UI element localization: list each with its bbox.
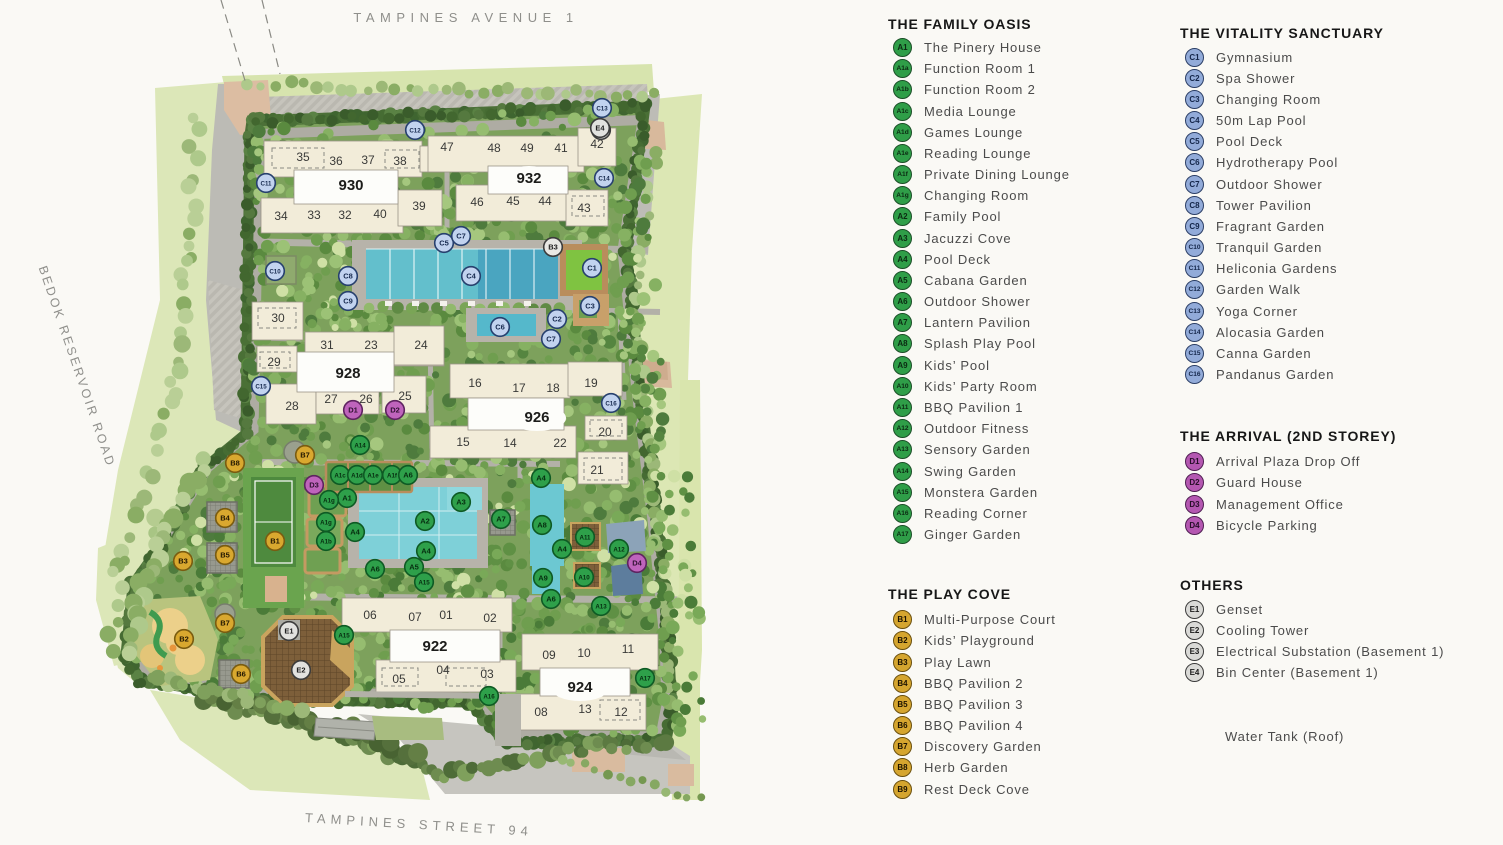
svg-text:07: 07	[408, 610, 422, 624]
svg-text:B4: B4	[220, 513, 230, 522]
svg-text:20: 20	[598, 425, 612, 439]
svg-text:03: 03	[480, 667, 494, 681]
svg-text:28: 28	[285, 399, 299, 413]
svg-text:A4: A4	[421, 546, 431, 555]
svg-text:21: 21	[590, 463, 604, 477]
svg-text:C6: C6	[495, 322, 505, 331]
svg-text:18: 18	[546, 381, 560, 395]
svg-text:A17: A17	[639, 675, 651, 682]
svg-text:C14: C14	[598, 175, 610, 182]
svg-text:B5: B5	[220, 550, 230, 559]
svg-text:TAMPINES STREET 94: TAMPINES STREET 94	[305, 810, 534, 839]
svg-text:10: 10	[577, 646, 591, 660]
svg-text:A14: A14	[354, 442, 366, 449]
svg-text:34: 34	[274, 209, 288, 223]
svg-text:D4: D4	[632, 558, 642, 567]
svg-text:13: 13	[578, 702, 592, 716]
svg-text:C8: C8	[343, 271, 353, 280]
svg-text:02: 02	[483, 611, 497, 625]
svg-text:TAMPINES AVENUE 1: TAMPINES AVENUE 1	[353, 10, 578, 25]
svg-text:47: 47	[440, 140, 454, 154]
svg-text:A15: A15	[338, 632, 350, 639]
svg-text:A1d: A1d	[351, 472, 363, 479]
svg-text:B8: B8	[230, 458, 240, 467]
svg-text:A9: A9	[538, 573, 548, 582]
svg-text:09: 09	[542, 648, 556, 662]
svg-text:36: 36	[329, 154, 343, 168]
svg-text:A4: A4	[557, 544, 567, 553]
svg-text:27: 27	[324, 392, 338, 406]
svg-text:A1b: A1b	[320, 538, 332, 545]
svg-text:15: 15	[456, 435, 470, 449]
svg-text:17: 17	[512, 381, 526, 395]
svg-text:33: 33	[307, 208, 321, 222]
svg-text:32: 32	[338, 208, 352, 222]
svg-text:C13: C13	[596, 105, 608, 112]
svg-text:B2: B2	[179, 634, 189, 643]
svg-text:43: 43	[577, 201, 591, 215]
svg-text:06: 06	[363, 608, 377, 622]
svg-text:45: 45	[506, 194, 520, 208]
svg-text:A7: A7	[496, 514, 506, 523]
svg-text:11: 11	[622, 642, 635, 656]
svg-text:926: 926	[524, 409, 549, 426]
svg-text:A6: A6	[370, 564, 380, 573]
svg-text:A11: A11	[579, 534, 591, 541]
svg-text:01: 01	[439, 608, 453, 622]
svg-text:B3: B3	[178, 556, 188, 565]
svg-text:A1g: A1g	[323, 497, 335, 504]
svg-text:C4: C4	[466, 271, 476, 280]
svg-text:49: 49	[520, 141, 534, 155]
svg-text:22: 22	[553, 436, 567, 450]
svg-text:29: 29	[267, 355, 281, 369]
svg-text:D3: D3	[309, 480, 319, 489]
svg-text:E4: E4	[595, 123, 605, 132]
svg-text:12: 12	[614, 705, 628, 719]
svg-text:A5: A5	[409, 562, 419, 571]
svg-text:A12: A12	[613, 546, 625, 553]
svg-text:928: 928	[335, 365, 360, 382]
svg-text:C5: C5	[439, 238, 449, 247]
svg-text:924: 924	[567, 679, 593, 696]
svg-text:C9: C9	[343, 296, 353, 305]
svg-text:A8: A8	[537, 520, 547, 529]
svg-text:C12: C12	[409, 127, 421, 134]
svg-text:04: 04	[436, 663, 450, 677]
svg-text:A16: A16	[483, 693, 495, 700]
svg-text:37: 37	[361, 153, 375, 167]
svg-text:48: 48	[487, 141, 501, 155]
svg-text:A1: A1	[342, 493, 352, 502]
svg-text:C11: C11	[260, 180, 272, 187]
svg-text:19: 19	[584, 376, 598, 390]
svg-text:A4: A4	[350, 527, 360, 536]
svg-text:D2: D2	[390, 405, 400, 414]
svg-text:38: 38	[393, 154, 407, 168]
svg-text:30: 30	[271, 311, 285, 325]
svg-text:A13: A13	[595, 603, 607, 610]
svg-text:E2: E2	[296, 665, 305, 674]
svg-text:A1e: A1e	[367, 472, 379, 479]
svg-text:C2: C2	[552, 314, 562, 323]
svg-text:930: 930	[338, 177, 363, 194]
svg-text:E1: E1	[284, 626, 293, 635]
svg-text:B3: B3	[548, 242, 558, 251]
svg-text:D1: D1	[348, 405, 358, 414]
svg-text:B6: B6	[236, 669, 246, 678]
svg-text:A1g: A1g	[320, 519, 332, 526]
svg-text:A3: A3	[456, 497, 466, 506]
svg-text:B1: B1	[270, 536, 280, 545]
svg-text:BEDOK RESERVOIR ROAD: BEDOK RESERVOIR ROAD	[36, 264, 118, 469]
svg-text:46: 46	[470, 195, 484, 209]
svg-text:A4: A4	[536, 473, 546, 482]
svg-text:A15: A15	[418, 579, 430, 586]
svg-text:C15: C15	[255, 383, 267, 390]
svg-text:922: 922	[422, 638, 447, 655]
svg-text:B7: B7	[220, 618, 230, 627]
svg-text:39: 39	[412, 199, 426, 213]
svg-text:44: 44	[538, 194, 552, 208]
svg-text:40: 40	[373, 207, 387, 221]
svg-text:A2: A2	[420, 516, 430, 525]
svg-text:25: 25	[398, 389, 412, 403]
svg-text:C10: C10	[269, 268, 281, 275]
svg-text:14: 14	[503, 436, 517, 450]
svg-text:23: 23	[364, 338, 378, 352]
svg-text:A1c: A1c	[334, 472, 346, 479]
svg-text:C1: C1	[587, 263, 597, 272]
svg-text:932: 932	[516, 170, 541, 187]
svg-text:35: 35	[296, 150, 310, 164]
svg-text:A1f: A1f	[387, 472, 398, 479]
svg-text:26: 26	[359, 392, 373, 406]
svg-text:05: 05	[392, 672, 406, 686]
svg-text:16: 16	[468, 376, 482, 390]
svg-text:24: 24	[414, 338, 428, 352]
svg-text:41: 41	[554, 141, 568, 155]
svg-text:B7: B7	[300, 450, 310, 459]
svg-text:C7: C7	[456, 231, 466, 240]
svg-text:31: 31	[320, 338, 334, 352]
svg-text:A6: A6	[546, 594, 556, 603]
svg-text:A6: A6	[403, 470, 413, 479]
svg-text:C16: C16	[605, 400, 617, 407]
svg-text:A10: A10	[578, 574, 590, 581]
svg-text:C3: C3	[585, 301, 595, 310]
svg-text:C7: C7	[546, 334, 556, 343]
svg-text:08: 08	[534, 705, 548, 719]
